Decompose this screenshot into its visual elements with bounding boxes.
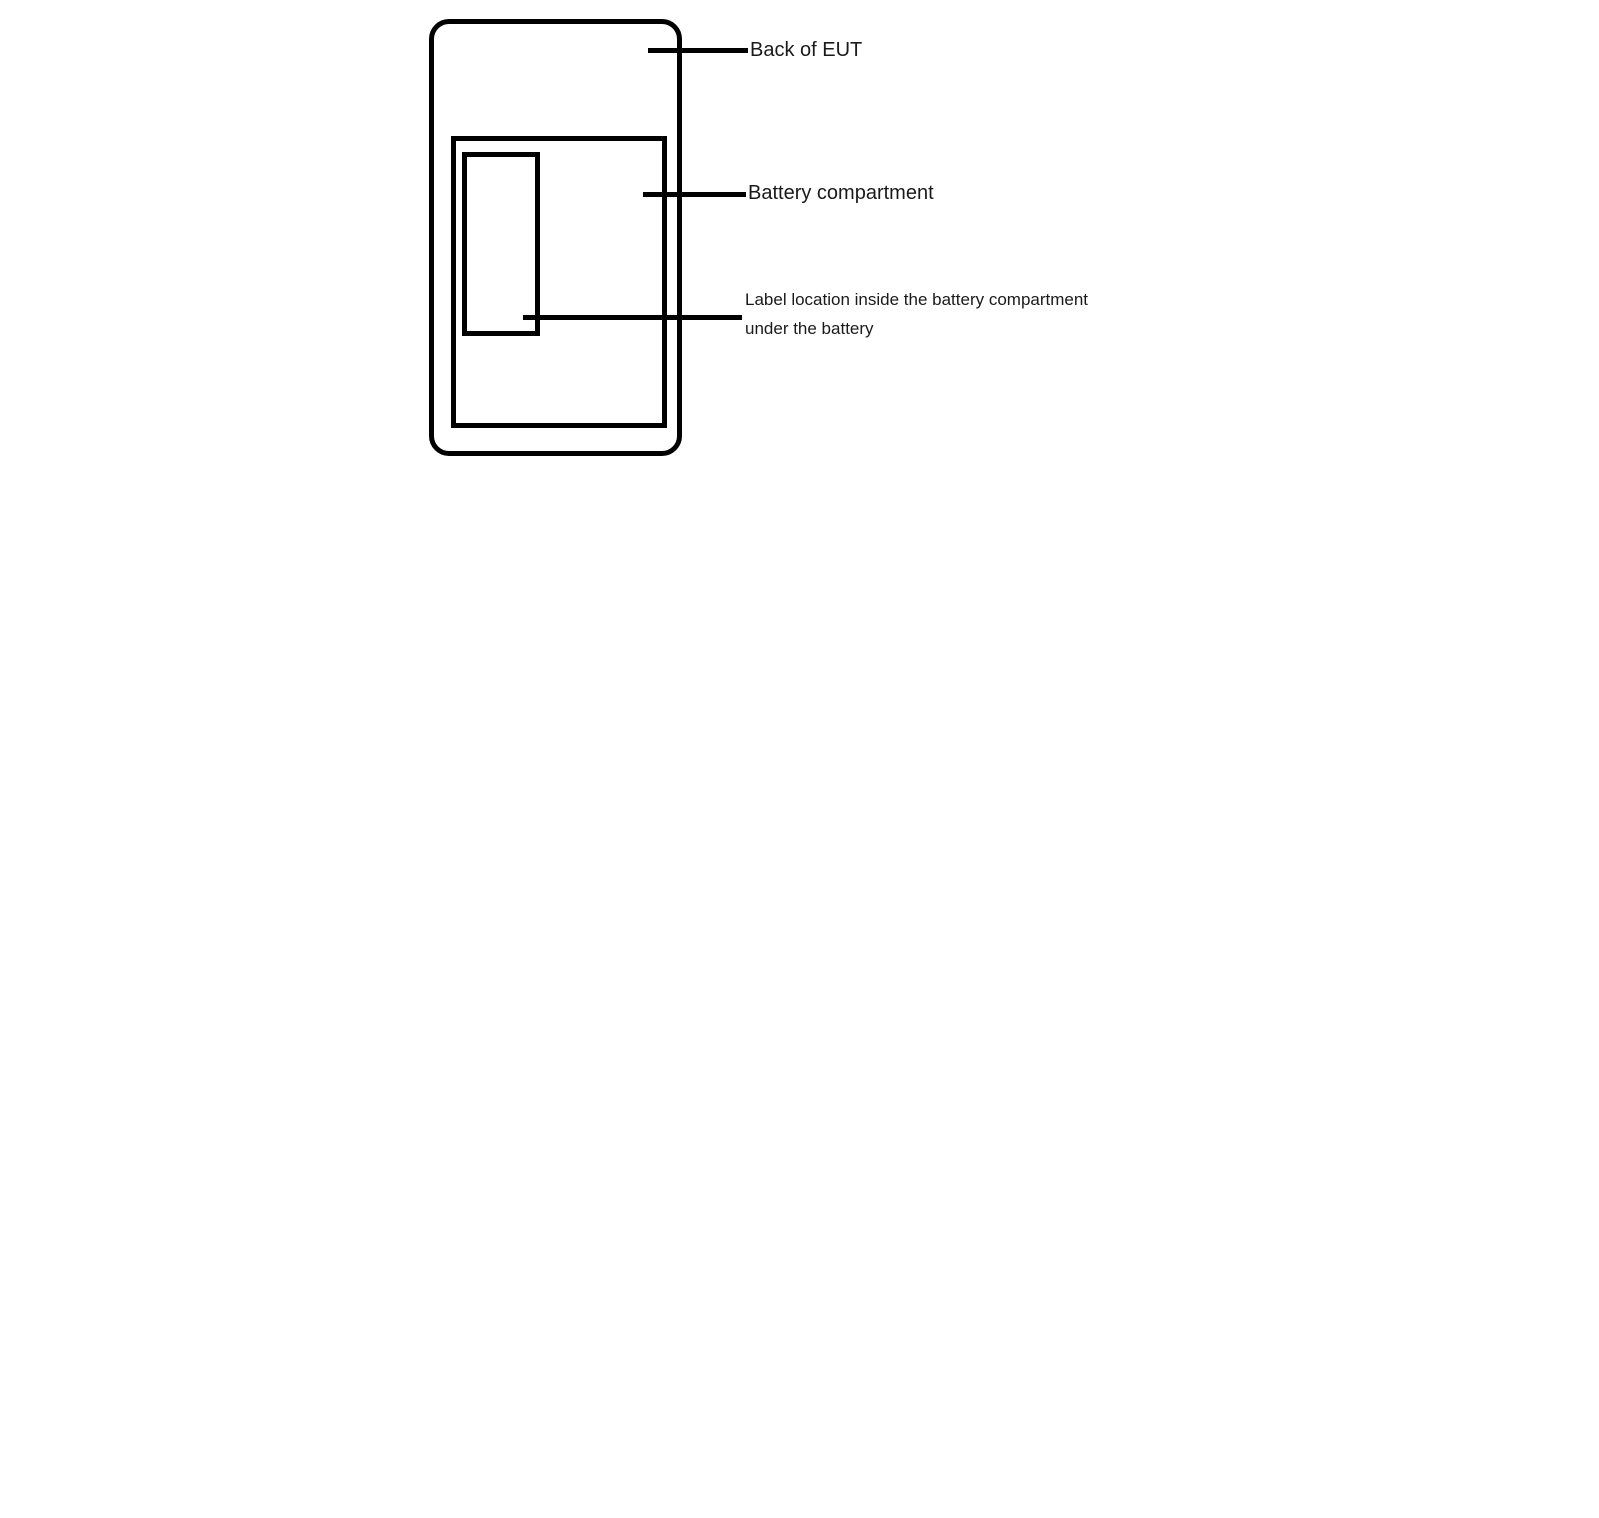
label-back-of-eut: Back of EUT — [750, 38, 862, 63]
label-location-line-2: under the battery — [745, 314, 1088, 343]
leader-line-battery-compartment — [643, 192, 746, 197]
label-label-location: Label location inside the battery compar… — [745, 285, 1088, 343]
label-location-line-1: Label location inside the battery compar… — [745, 285, 1088, 314]
leader-line-label-location — [523, 315, 742, 320]
leader-line-back-of-eut — [648, 48, 748, 53]
figure-canvas: Back of EUT Battery compartment Label lo… — [0, 0, 1599, 1518]
label-battery-compartment: Battery compartment — [748, 181, 934, 206]
label-location-outline — [462, 152, 540, 336]
